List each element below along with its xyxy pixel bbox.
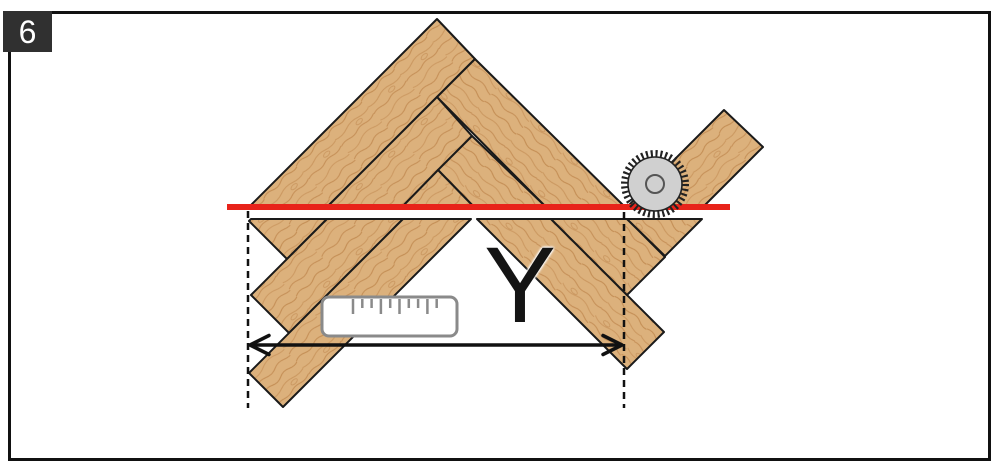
dimension-label-y: Y xyxy=(484,231,556,339)
figure-step-6: Y 6 xyxy=(0,0,994,467)
step-number-badge: 6 xyxy=(3,11,52,52)
blade-hub xyxy=(646,175,664,193)
ruler-icon xyxy=(322,297,457,336)
wood-planks xyxy=(248,19,763,407)
